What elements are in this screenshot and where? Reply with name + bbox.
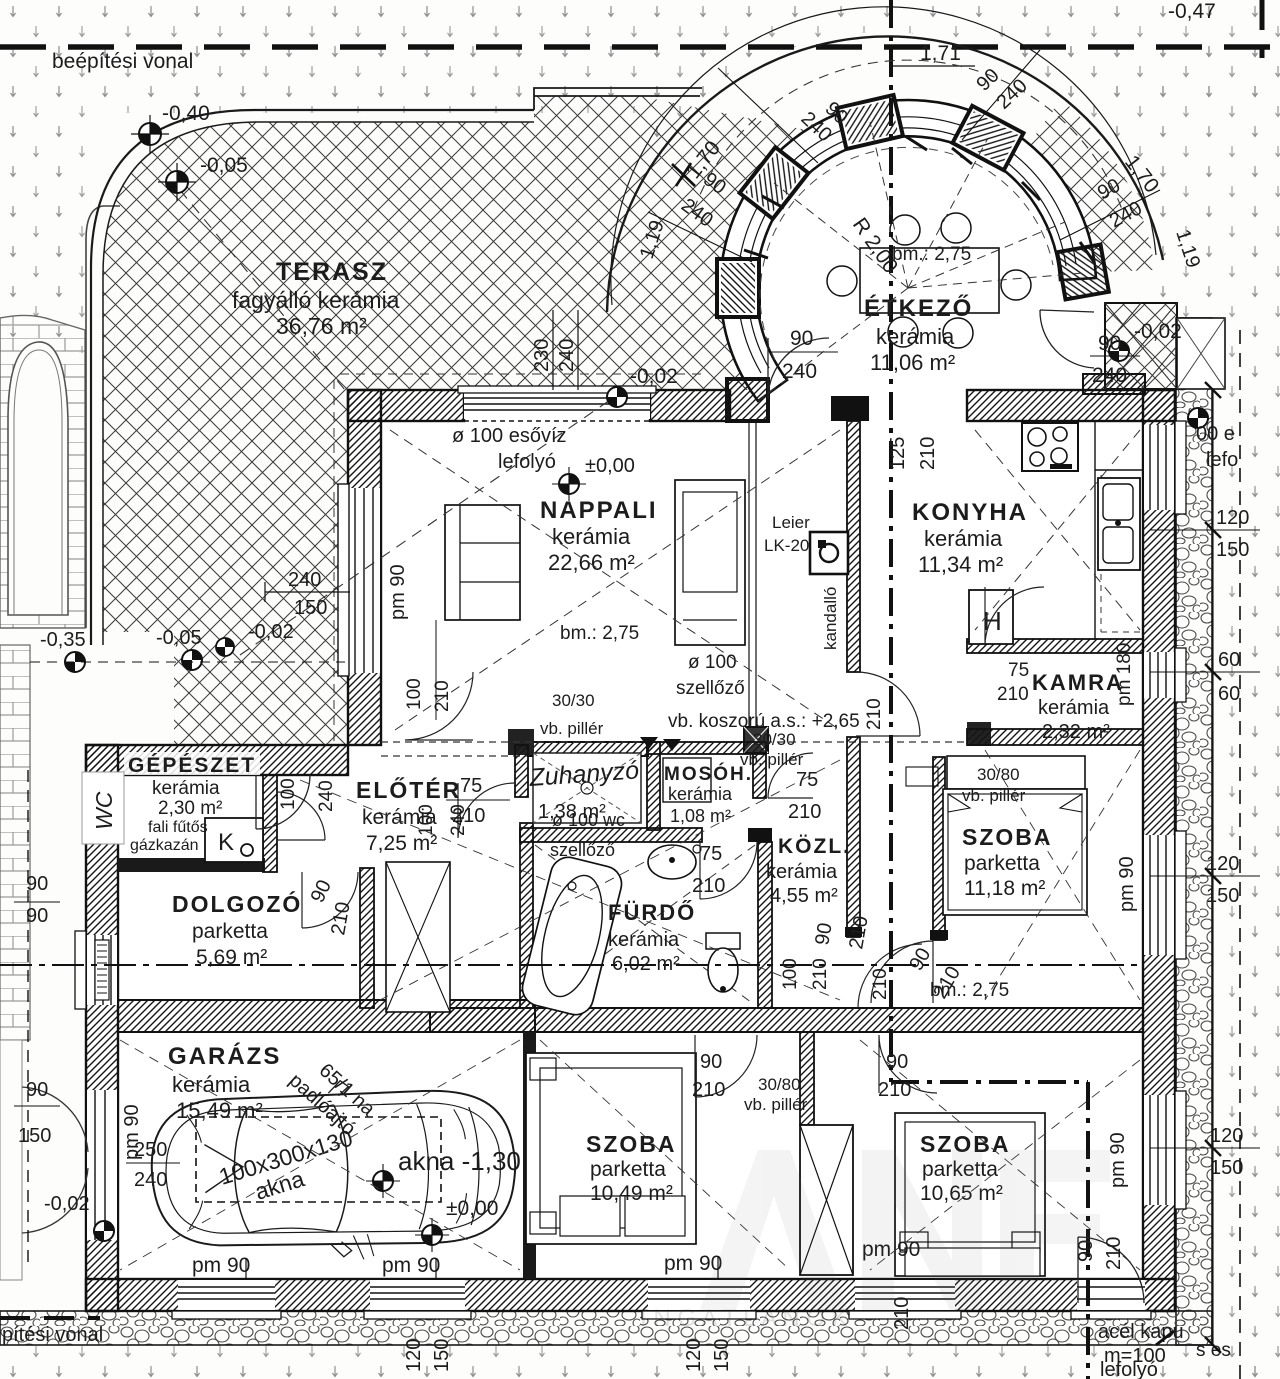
svg-text:±0,00: ±0,00	[446, 1197, 498, 1220]
svg-text:125: 125	[887, 437, 909, 470]
svg-text:fagyálló kerámia: fagyálló kerámia	[232, 287, 400, 313]
svg-text:100: 100	[780, 958, 801, 990]
svg-text:90: 90	[26, 1079, 48, 1101]
svg-text:210: 210	[917, 437, 939, 470]
svg-text:250: 250	[134, 1139, 167, 1161]
svg-text:210: 210	[692, 1079, 725, 1101]
svg-text:GÉPÉSZET: GÉPÉSZET	[128, 754, 256, 777]
svg-text:75: 75	[1008, 660, 1029, 681]
svg-text:240: 240	[316, 780, 337, 812]
svg-text:90: 90	[886, 1051, 908, 1073]
svg-text:210: 210	[864, 698, 885, 730]
svg-text:kerámia: kerámia	[608, 929, 680, 951]
svg-text:LK-20: LK-20	[764, 536, 809, 555]
svg-text:210: 210	[452, 805, 485, 827]
svg-text:TERASZ: TERASZ	[276, 258, 388, 286]
svg-text:90: 90	[1098, 332, 1121, 355]
svg-text:kerámia: kerámia	[924, 526, 1003, 551]
svg-text:-0,02: -0,02	[248, 621, 294, 643]
svg-text:90: 90	[700, 1051, 722, 1073]
svg-text:240: 240	[1092, 364, 1127, 387]
svg-text:120: 120	[1206, 853, 1239, 875]
svg-text:240: 240	[134, 1169, 167, 1191]
svg-text:210: 210	[788, 801, 821, 823]
svg-text:parketta: parketta	[192, 920, 268, 943]
svg-text:90: 90	[26, 873, 48, 895]
svg-text:bm.: 2,75: bm.: 2,75	[892, 244, 971, 265]
svg-text:1,38 m²: 1,38 m²	[538, 801, 606, 823]
svg-text:210: 210	[870, 968, 891, 1000]
svg-text:210: 210	[1103, 1237, 1125, 1270]
svg-text:pm 90: pm 90	[1116, 856, 1138, 912]
svg-text:150: 150	[711, 1339, 733, 1372]
svg-text:kerámia: kerámia	[552, 524, 631, 549]
svg-text:150: 150	[294, 597, 327, 619]
svg-text:-0,40: -0,40	[162, 102, 210, 125]
svg-text:±0,00: ±0,00	[585, 455, 635, 477]
svg-text:90: 90	[26, 905, 48, 927]
svg-text:30/80: 30/80	[758, 1075, 801, 1094]
svg-text:DOLGOZÓ: DOLGOZÓ	[172, 890, 302, 917]
svg-text:szellőző: szellőző	[676, 678, 745, 699]
svg-text:szellőző: szellőző	[550, 840, 615, 860]
svg-text:210: 210	[878, 1079, 911, 1101]
svg-text:90: 90	[811, 921, 837, 947]
svg-text:lefo: lefo	[1206, 449, 1238, 471]
svg-text:150: 150	[18, 1125, 51, 1147]
svg-text:NAPPALI: NAPPALI	[540, 497, 658, 524]
svg-text:00 e: 00 e	[1196, 423, 1235, 445]
svg-text:vb. pillér: vb. pillér	[744, 1095, 808, 1114]
svg-text:2,30 m²: 2,30 m²	[158, 798, 222, 819]
svg-text:75: 75	[700, 843, 722, 865]
svg-text:4,55 m²: 4,55 m²	[770, 885, 838, 907]
svg-text:240: 240	[288, 569, 321, 591]
svg-text:ø 100 esővíz: ø 100 esővíz	[452, 425, 567, 447]
svg-text:pm 90: pm 90	[192, 1254, 250, 1277]
svg-text:ø 100: ø 100	[688, 652, 737, 673]
svg-text:FÜRDŐ: FÜRDŐ	[608, 900, 696, 925]
svg-text:ÉTKEZŐ: ÉTKEZŐ	[864, 294, 973, 322]
svg-text:90: 90	[790, 327, 813, 350]
svg-text:parketta: parketta	[590, 1158, 666, 1181]
svg-text:150: 150	[431, 1339, 453, 1372]
svg-text:pm 180: pm 180	[1114, 643, 1135, 706]
svg-text:10,49 m²: 10,49 m²	[590, 1182, 673, 1205]
svg-text:60: 60	[1218, 683, 1240, 705]
svg-text:MOSÓH.: MOSÓH.	[664, 763, 753, 785]
svg-text:bm.: 2,75: bm.: 2,75	[560, 623, 639, 644]
svg-text:beépítési vonal: beépítési vonal	[52, 50, 193, 73]
svg-text:-0,02: -0,02	[44, 1193, 90, 1215]
svg-text:2,32 m²: 2,32 m²	[1042, 721, 1110, 743]
svg-text:11,18 m²: 11,18 m²	[964, 877, 1045, 900]
svg-text:kerámia: kerámia	[1038, 697, 1110, 719]
svg-text:120: 120	[683, 1339, 705, 1372]
svg-text:vb. pillér: vb. pillér	[962, 786, 1026, 805]
svg-text:210: 210	[997, 684, 1029, 705]
svg-text:11,06 m²: 11,06 m²	[870, 350, 955, 375]
svg-text:KONYHA: KONYHA	[912, 499, 1028, 526]
svg-text:kerámia: kerámia	[152, 778, 220, 799]
svg-text:30/30: 30/30	[552, 691, 595, 710]
svg-text:11,34 m²: 11,34 m²	[918, 552, 1003, 577]
svg-text:ELŐTÉR: ELŐTÉR	[356, 776, 461, 803]
svg-text:5,69 m²: 5,69 m²	[196, 946, 267, 969]
svg-text:K: K	[218, 829, 234, 856]
svg-text:150: 150	[1216, 539, 1249, 561]
svg-text:-0,35: -0,35	[40, 629, 86, 651]
svg-text:vb. pillér: vb. pillér	[540, 719, 604, 738]
svg-text:pm 90: pm 90	[1107, 1132, 1129, 1188]
svg-text:pm 90: pm 90	[382, 1254, 440, 1277]
svg-text:210: 210	[810, 958, 831, 990]
svg-text:210: 210	[692, 875, 725, 897]
svg-text:30/30: 30/30	[753, 730, 796, 749]
svg-text:75: 75	[460, 775, 482, 797]
svg-text:I N G A T L A N O K: I N G A T L A N O K	[640, 1305, 848, 1332]
svg-text:6,02 m²: 6,02 m²	[612, 953, 680, 975]
svg-text:150: 150	[1210, 1157, 1243, 1179]
svg-text:150: 150	[1206, 885, 1239, 907]
svg-text:210: 210	[891, 1297, 913, 1330]
svg-text:SZOBA: SZOBA	[586, 1131, 677, 1157]
svg-text:pm 90: pm 90	[387, 564, 409, 620]
svg-text:vb. koszorú a.s.: +2,65: vb. koszorú a.s.: +2,65	[668, 711, 860, 732]
svg-text:gázkazán: gázkazán	[130, 837, 199, 854]
svg-text:36,76 m²: 36,76 m²	[276, 313, 367, 339]
svg-text:30/80: 30/80	[977, 765, 1020, 784]
svg-text:akna -1,30: akna -1,30	[398, 1146, 521, 1176]
svg-text:-0,05: -0,05	[200, 154, 248, 177]
svg-text:15,49 m²: 15,49 m²	[176, 1098, 263, 1123]
svg-text:210: 210	[432, 680, 453, 712]
svg-text:kerámia: kerámia	[172, 1072, 251, 1097]
svg-text:230: 230	[531, 339, 553, 372]
svg-text:Leier: Leier	[772, 513, 810, 532]
svg-text:240: 240	[556, 339, 578, 372]
svg-text:-0,05: -0,05	[156, 627, 202, 649]
svg-text:1,08 m²: 1,08 m²	[670, 806, 731, 826]
svg-text:75: 75	[796, 769, 818, 791]
svg-text:100: 100	[278, 778, 299, 810]
svg-text:-0,02: -0,02	[1134, 320, 1182, 343]
svg-text:kerámia: kerámia	[668, 784, 733, 804]
svg-text:22,66 m²: 22,66 m²	[548, 550, 635, 575]
svg-text:pítési vonal: pítési vonal	[2, 1324, 103, 1346]
svg-text:KÖZL.: KÖZL.	[778, 835, 851, 858]
svg-text:100: 100	[404, 678, 425, 710]
svg-text:120: 120	[403, 1339, 425, 1372]
svg-text:fali fűtős: fali fűtős	[148, 819, 208, 836]
svg-text:120: 120	[1210, 1125, 1243, 1147]
svg-text:GARÁZS: GARÁZS	[168, 1042, 281, 1070]
svg-text:kerámia: kerámia	[766, 861, 838, 883]
svg-text:KAMRA: KAMRA	[1032, 670, 1124, 695]
svg-text:-0,02: -0,02	[630, 365, 678, 388]
svg-text:120: 120	[1216, 507, 1249, 529]
svg-text:lefolyó: lefolyó	[1100, 1359, 1158, 1379]
svg-text:s es: s es	[1196, 1340, 1231, 1361]
svg-text:60: 60	[1218, 649, 1240, 671]
svg-text:kerámia: kerámia	[876, 324, 955, 349]
svg-text:pm 90: pm 90	[664, 1252, 722, 1275]
svg-text:lefolyó: lefolyó	[498, 451, 556, 473]
svg-text:kandalló: kandalló	[821, 587, 840, 650]
svg-text:H: H	[983, 606, 1002, 636]
svg-text:WC: WC	[91, 791, 117, 830]
svg-text:parketta: parketta	[964, 852, 1040, 875]
svg-text:-0,47: -0,47	[1168, 0, 1216, 23]
